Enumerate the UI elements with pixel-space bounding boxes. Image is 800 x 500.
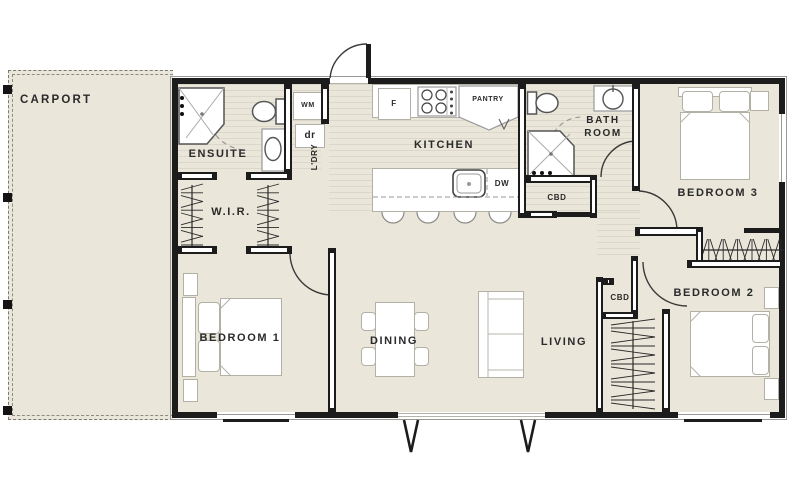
carport-post <box>3 300 12 309</box>
wall-hall-stub <box>635 227 703 236</box>
bed2-bedside-table <box>764 287 779 309</box>
bed1-pillow <box>198 302 220 334</box>
dishwasher-label: DW <box>495 178 510 190</box>
wall-ensuite-laundry <box>284 84 292 174</box>
wall-bathroom-cupboard <box>526 175 597 183</box>
bed1-bedside-table <box>183 379 198 402</box>
wall-bedroom1-dining <box>328 248 336 413</box>
bed1-bedside-table <box>183 273 198 296</box>
wall-wir-bedroom1 <box>177 246 217 254</box>
wall-laundry-entry <box>321 84 329 124</box>
wall-bedroom2-robe <box>662 309 670 413</box>
bedroom1-window-sill <box>223 419 289 422</box>
carport-post <box>3 406 12 415</box>
wall-living-bedroom2 <box>596 277 603 413</box>
hall-tiled-floor <box>597 212 640 260</box>
room-label-ensuite: ENSUITE <box>189 148 248 160</box>
wall-wir-bedroom1 <box>246 246 292 254</box>
living-sliding-door <box>398 412 545 418</box>
wall-bedroom3-bedroom2 <box>687 260 785 268</box>
hall-cupboard-door <box>556 212 591 217</box>
pantry-label: PANTRY <box>472 94 504 106</box>
bed1-pillow <box>198 340 220 372</box>
room-label-carport: CARPORT <box>20 94 92 106</box>
wall-cupboard-bottom <box>526 211 557 218</box>
bed3-pillow <box>682 91 713 112</box>
room-label-kitchen: KITCHEN <box>414 139 474 151</box>
bedroom1-window <box>215 412 297 418</box>
room-label-bedroom3: BEDROOM 3 <box>677 187 758 199</box>
dining-chair <box>414 347 429 366</box>
room-label-bedroom2: BEDROOM 2 <box>673 287 754 299</box>
dining-chair <box>361 312 376 331</box>
bed3-pillow <box>719 91 750 112</box>
bed1-headboard <box>182 297 196 377</box>
room-label-bedroom1: BEDROOM 1 <box>199 332 280 344</box>
wall-ensuite-wir <box>177 172 217 180</box>
entry-opening <box>330 78 368 84</box>
washing-machine-label: WM <box>301 100 315 112</box>
wall-kitchen-bathroom <box>518 84 526 218</box>
sliding-door-marks <box>404 420 535 452</box>
bedroom3-window <box>779 112 785 184</box>
wall-cupboard2-bottom <box>601 312 638 319</box>
bed3-bedside-table <box>750 91 769 111</box>
bed3-mattress <box>680 112 750 180</box>
wall-bathroom-bedroom3 <box>632 84 640 191</box>
entry-door-arc <box>330 44 367 81</box>
hall-cupboard-label: CBD <box>547 192 566 204</box>
bedroom2-window-sill <box>684 419 762 422</box>
wall-cupboard-hall <box>590 175 597 218</box>
wall-ensuite-wir <box>246 172 292 180</box>
dining-chair <box>414 312 429 331</box>
room-label-laundry: L'DRY <box>309 144 321 170</box>
wall-cupboard2-top <box>603 278 614 285</box>
carport-post <box>3 85 12 94</box>
bedroom2-cupboard-label: CBD <box>610 292 629 304</box>
kitchen-island <box>372 168 519 212</box>
floor-plan: CARPORT ENSUITE W.I.R. L'DRY WM dr F PAN… <box>0 0 800 500</box>
room-label-wir: W.I.R. <box>211 206 251 218</box>
dryer-label: dr <box>305 130 316 142</box>
room-label-dining: DINING <box>370 335 418 347</box>
bed2-pillow <box>752 346 769 375</box>
carport-area <box>8 70 173 420</box>
bedroom3-robe-rail <box>744 228 785 233</box>
room-label-living: LIVING <box>541 336 587 348</box>
bedroom2-window <box>676 412 772 418</box>
room-label-bathroom: BATH ROOM <box>584 114 622 140</box>
bathroom-tiled-floor <box>526 84 640 212</box>
bed2-bedside-table <box>764 378 779 400</box>
dining-chair <box>361 347 376 366</box>
bed2-pillow <box>752 314 769 343</box>
carport-post <box>3 193 12 202</box>
fridge-label: F <box>391 98 397 110</box>
sofa <box>478 291 524 378</box>
wall-cupboard2-side <box>631 256 638 315</box>
